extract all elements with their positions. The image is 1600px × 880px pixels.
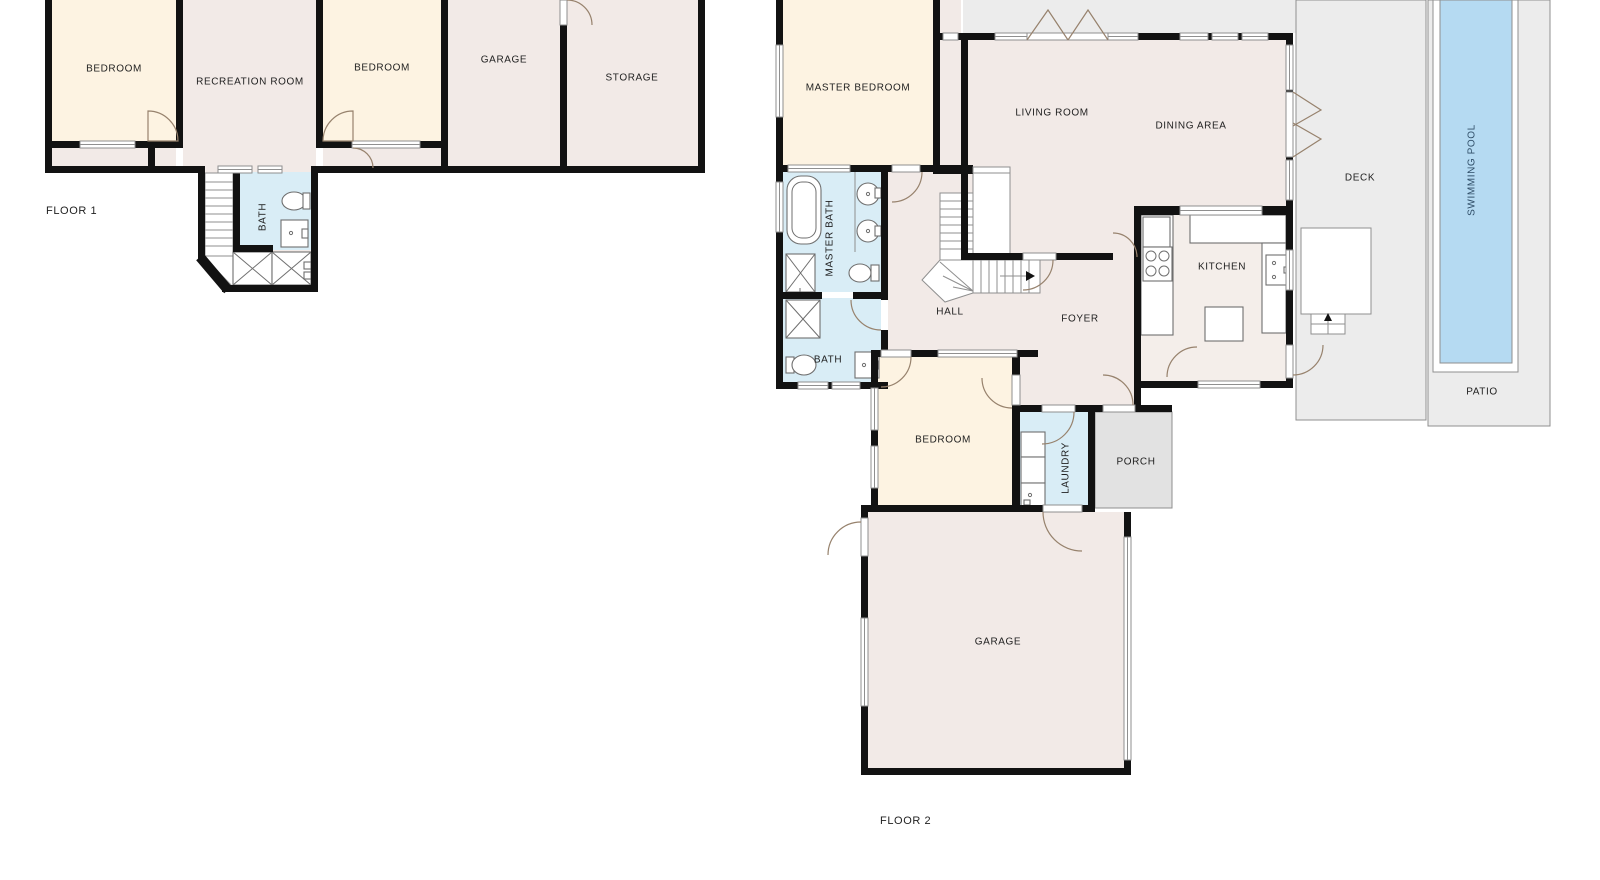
room-label-recreation: RECREATION ROOM [196, 77, 304, 88]
room-bedroom-fill [878, 357, 1012, 508]
room-label-swimming-pool: SWIMMING POOL [1467, 124, 1478, 216]
room-label-living-room: LIVING ROOM [1015, 108, 1088, 119]
deck-area [1296, 0, 1426, 420]
toilet-icon [849, 264, 871, 282]
room-label-deck: DECK [1345, 173, 1375, 184]
floor1-shower-area [233, 252, 311, 285]
room-label-garage1: GARAGE [481, 55, 527, 66]
room-label-master-bath: MASTER BATH [825, 200, 836, 277]
room-label-bath1: BATH [258, 203, 269, 231]
floor2-title: FLOOR 2 [880, 815, 931, 827]
floor1-bath-fixtures [281, 192, 310, 247]
dryer-icon [1021, 457, 1045, 483]
washer-icon [1021, 432, 1045, 457]
floorplan-image: BEDROOM RECREATION ROOM BEDROOM GARAGE S… [0, 0, 1600, 880]
room-label-bedroom-1: BEDROOM [86, 64, 142, 75]
floor2-plan [776, 0, 1550, 775]
floorplan-canvas [0, 0, 1600, 880]
deck-table [1301, 228, 1371, 314]
room-label-storage: STORAGE [606, 73, 659, 84]
laundry-appliances [1021, 432, 1045, 507]
room-label-bath2: BATH [814, 355, 842, 366]
room-label-laundry: LAUNDRY [1061, 442, 1072, 494]
room-label-foyer: FOYER [1061, 314, 1098, 325]
room-label-bedroom-2: BEDROOM [354, 63, 410, 74]
fridge-icon [1143, 217, 1170, 247]
toilet-icon [282, 192, 306, 210]
room-garage1-fill [448, 0, 560, 166]
room-label-garage2: GARAGE [975, 637, 1021, 648]
floor1-title: FLOOR 1 [46, 205, 97, 217]
room-label-master-bedroom: MASTER BEDROOM [806, 83, 911, 94]
room-label-porch: PORCH [1116, 457, 1155, 468]
room-label-hall: HALL [936, 307, 963, 318]
floor1-plan [45, 0, 705, 292]
kitchen-island [1205, 307, 1243, 341]
room-label-bedroom: BEDROOM [915, 435, 971, 446]
toilet-icon [792, 355, 816, 375]
room-label-patio: PATIO [1466, 387, 1498, 398]
room-label-dining-area: DINING AREA [1155, 121, 1226, 132]
room-label-kitchen: KITCHEN [1198, 262, 1246, 273]
